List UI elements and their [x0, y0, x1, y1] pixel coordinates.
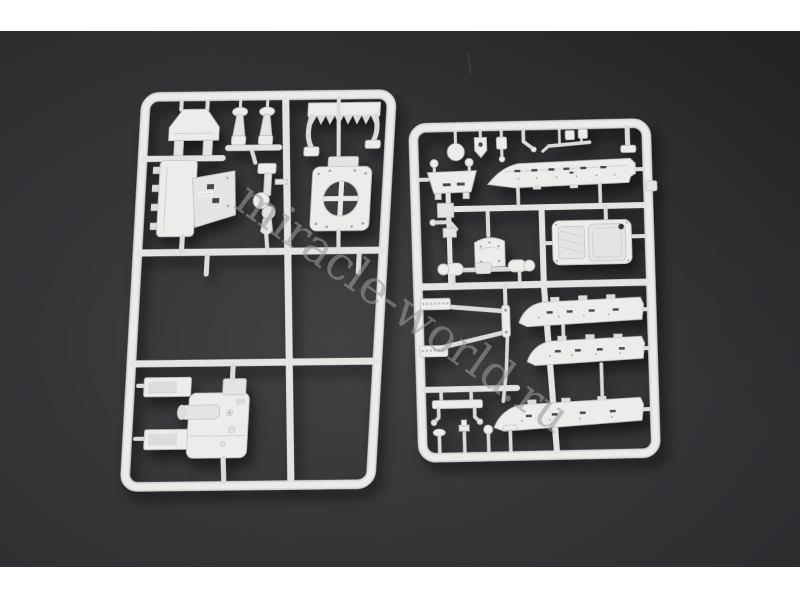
dust-speck [299, 371, 301, 373]
frame-outer-stub [646, 181, 657, 191]
photo-canvas: miracle-world.ru [0, 0, 800, 600]
product-photo: miracle-world.ru [0, 0, 800, 600]
runner-joint [437, 203, 453, 217]
top-white-band [0, 0, 800, 31]
bottom-white-band [0, 567, 800, 600]
dust-speck [699, 319, 701, 321]
